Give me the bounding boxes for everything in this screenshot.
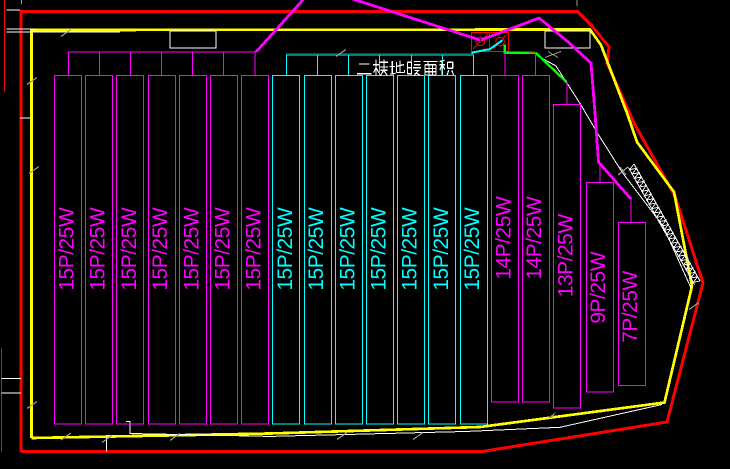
svg-text:15P/25W: 15P/25W <box>243 207 266 291</box>
svg-text:14P/25W: 14P/25W <box>493 196 516 280</box>
svg-text:15P/25W: 15P/25W <box>305 207 328 291</box>
svg-text:15P/25W: 15P/25W <box>274 207 297 291</box>
svg-text:9P/25W: 9P/25W <box>587 251 610 323</box>
svg-text:15P/25W: 15P/25W <box>56 207 79 291</box>
svg-text:15P/25W: 15P/25W <box>430 207 453 291</box>
svg-text:15P/25W: 15P/25W <box>87 207 110 291</box>
svg-text:13P/25W: 13P/25W <box>555 214 578 298</box>
svg-text:15P/25W: 15P/25W <box>368 207 391 291</box>
svg-text:15P/25W: 15P/25W <box>461 207 484 291</box>
svg-text:15P/25W: 15P/25W <box>149 207 172 291</box>
svg-text:15P/25W: 15P/25W <box>180 207 203 291</box>
svg-text:15P/25W: 15P/25W <box>212 207 235 291</box>
svg-text:15P/25W: 15P/25W <box>399 207 422 291</box>
svg-text:7P/25W: 7P/25W <box>619 270 642 342</box>
svg-text:15P/25W: 15P/25W <box>336 207 359 291</box>
svg-text:14P/25W: 14P/25W <box>523 196 546 280</box>
svg-text:15P/25W: 15P/25W <box>118 207 141 291</box>
